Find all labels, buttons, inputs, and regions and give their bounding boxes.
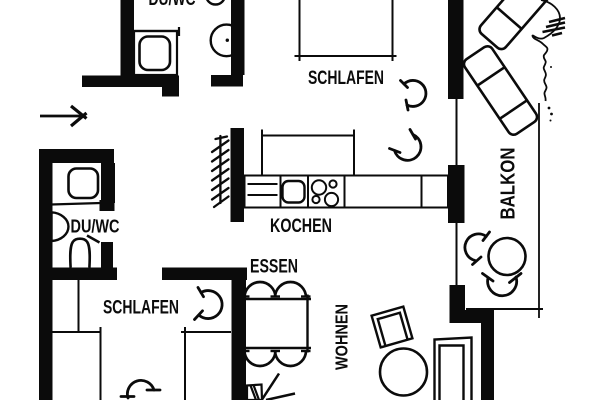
svg-text:KOCHEN: KOCHEN	[270, 215, 332, 237]
svg-text:SCHLAFEN: SCHLAFEN	[103, 297, 179, 319]
svg-text:SCHLAFEN: SCHLAFEN	[308, 67, 384, 89]
svg-text:DU/WC: DU/WC	[149, 0, 196, 9]
svg-text:WOHNEN: WOHNEN	[332, 304, 352, 370]
svg-text:ESSEN: ESSEN	[250, 256, 298, 278]
svg-text:DU/WC: DU/WC	[71, 217, 120, 237]
svg-text:BALKON: BALKON	[498, 148, 520, 220]
